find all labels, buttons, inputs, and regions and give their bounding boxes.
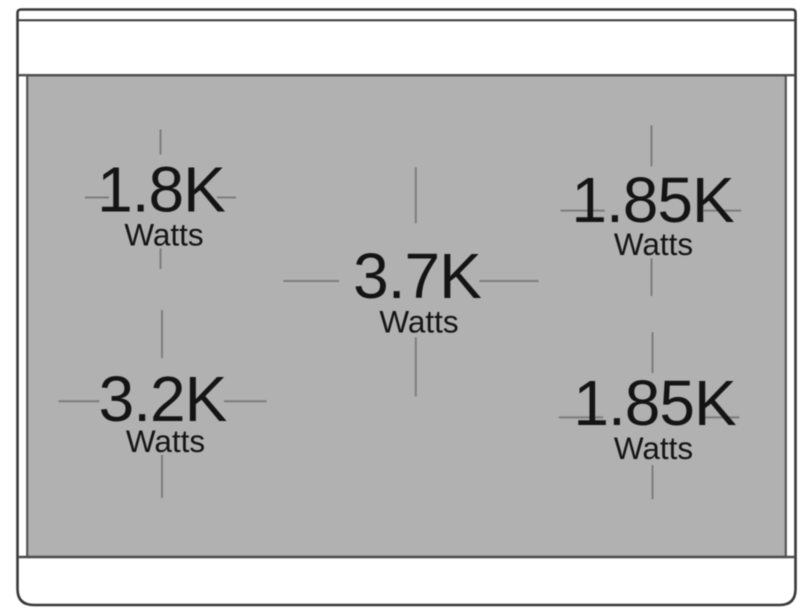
svg-text:3.7K: 3.7K: [353, 240, 481, 312]
svg-text:Watts: Watts: [614, 430, 693, 466]
svg-text:Watts: Watts: [379, 304, 458, 340]
svg-text:Watts: Watts: [124, 216, 203, 252]
svg-text:1.85K: 1.85K: [573, 367, 736, 439]
svg-text:Watts: Watts: [614, 226, 693, 262]
svg-text:Watts: Watts: [126, 423, 205, 459]
svg-text:1.8K: 1.8K: [97, 154, 225, 226]
